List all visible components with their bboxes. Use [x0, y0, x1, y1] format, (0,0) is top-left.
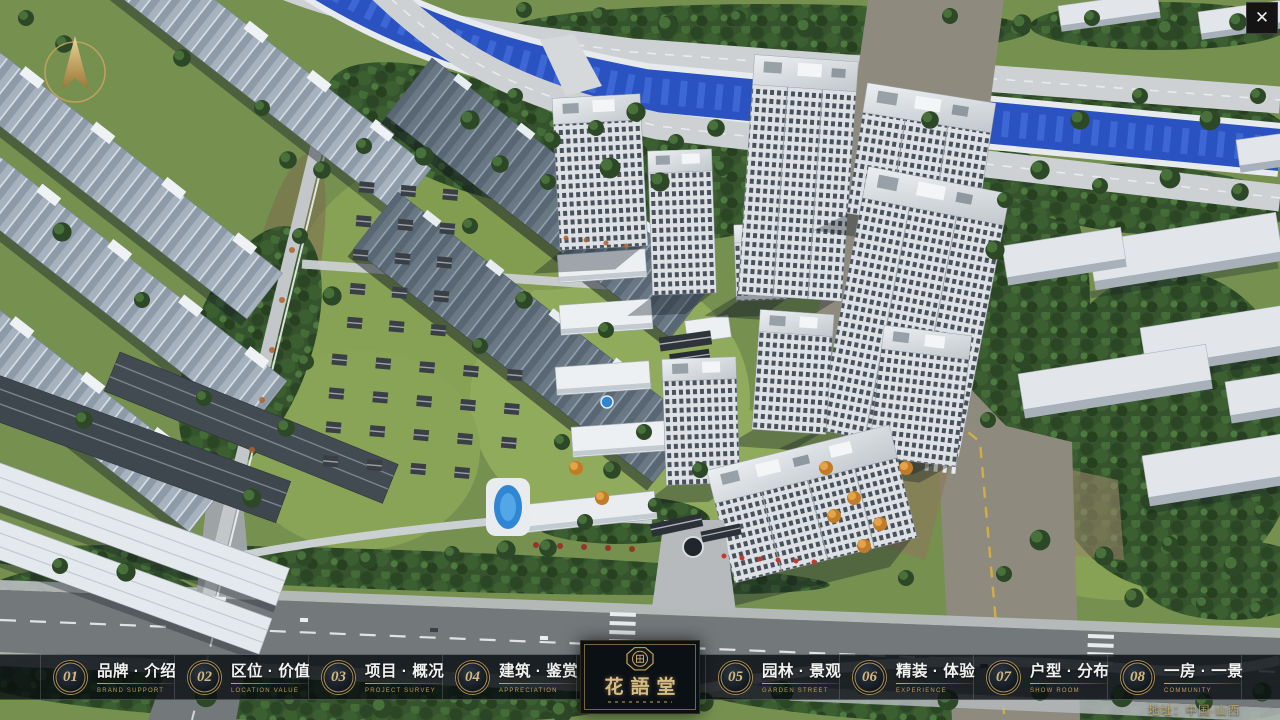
gold-rule	[499, 683, 576, 684]
nav-item-sublabel: COMMUNITY	[1164, 687, 1241, 694]
nav-item-sublabel: BRAND SUPPORT	[97, 687, 174, 694]
nav-number-badge: 08	[1121, 661, 1154, 694]
nav-item-sublabel: GARDEN STREET	[762, 687, 839, 694]
nav-number-badge: 04	[456, 661, 489, 694]
project-logo-title: 花語堂	[597, 678, 682, 697]
nav-item-sublabel: LOCATION VALUE	[231, 687, 308, 694]
gold-rule	[231, 683, 308, 684]
nav-item-location-value[interactable]: 02 区位 · 价值 LOCATION VALUE	[174, 655, 308, 699]
gold-rule	[896, 683, 973, 684]
nav-number-badge: 07	[987, 661, 1020, 694]
nav-right-pad	[1241, 655, 1280, 699]
gold-rule	[1030, 683, 1107, 684]
nav-item-label: 一房 · 一景	[1164, 659, 1241, 681]
close-button[interactable]: ✕	[1246, 2, 1278, 34]
project-address: 地址：中国·山西	[1148, 702, 1240, 718]
nav-left-pad	[0, 655, 40, 699]
nav-number-badge: 02	[188, 661, 221, 694]
gold-rule	[97, 683, 174, 684]
nav-number-badge: 03	[322, 661, 355, 694]
nav-item-sublabel: EXPERIENCE	[896, 687, 973, 694]
logo-seal-icon	[622, 645, 658, 677]
nav-number-badge: 05	[719, 661, 752, 694]
gold-rule	[365, 683, 442, 684]
logo-tagline-decor	[608, 701, 672, 703]
nav-item-label: 项目 · 概况	[365, 659, 442, 681]
nav-number-badge: 06	[853, 661, 886, 694]
nav-item-project-survey[interactable]: 03 项目 · 概况 PROJECT SURVEY	[308, 655, 442, 699]
nav-item-brand-intro[interactable]: 01 品牌 · 介绍 BRAND SUPPORT	[40, 655, 174, 699]
gold-rule	[762, 683, 839, 684]
nav-item-label: 建筑 · 鉴赏	[499, 659, 576, 681]
nav-item-label: 户型 · 分布	[1030, 659, 1107, 681]
gold-rule	[1164, 683, 1241, 684]
presentation-window: 01 品牌 · 介绍 BRAND SUPPORT 02 区位 · 价值 LOCA…	[0, 0, 1280, 720]
nav-item-room-view[interactable]: 08 一房 · 一景 COMMUNITY	[1107, 655, 1241, 699]
nav-number-badge: 01	[54, 661, 87, 694]
nav-item-label: 园林 · 景观	[762, 659, 839, 681]
nav-item-label: 精装 · 体验	[896, 659, 973, 681]
nav-item-interior-experience[interactable]: 06 精装 · 体验 EXPERIENCE	[839, 655, 973, 699]
nav-item-sublabel: SHOW ROOM	[1030, 687, 1107, 694]
nav-item-sublabel: APPRECIATION	[499, 687, 576, 694]
nav-item-garden-landscape[interactable]: 05 园林 · 景观 GARDEN STREET	[705, 655, 839, 699]
nav-item-architecture[interactable]: 04 建筑 · 鉴赏 APPRECIATION	[442, 655, 576, 699]
masterplan-3d-view[interactable]	[0, 0, 1280, 720]
nav-item-sublabel: PROJECT SURVEY	[365, 687, 442, 694]
project-logo-button[interactable]: 花語堂	[580, 640, 700, 714]
nav-item-floorplan-distribution[interactable]: 07 户型 · 分布 SHOW ROOM	[973, 655, 1107, 699]
nav-item-label: 区位 · 价值	[231, 659, 308, 681]
nav-item-label: 品牌 · 介绍	[97, 659, 174, 681]
